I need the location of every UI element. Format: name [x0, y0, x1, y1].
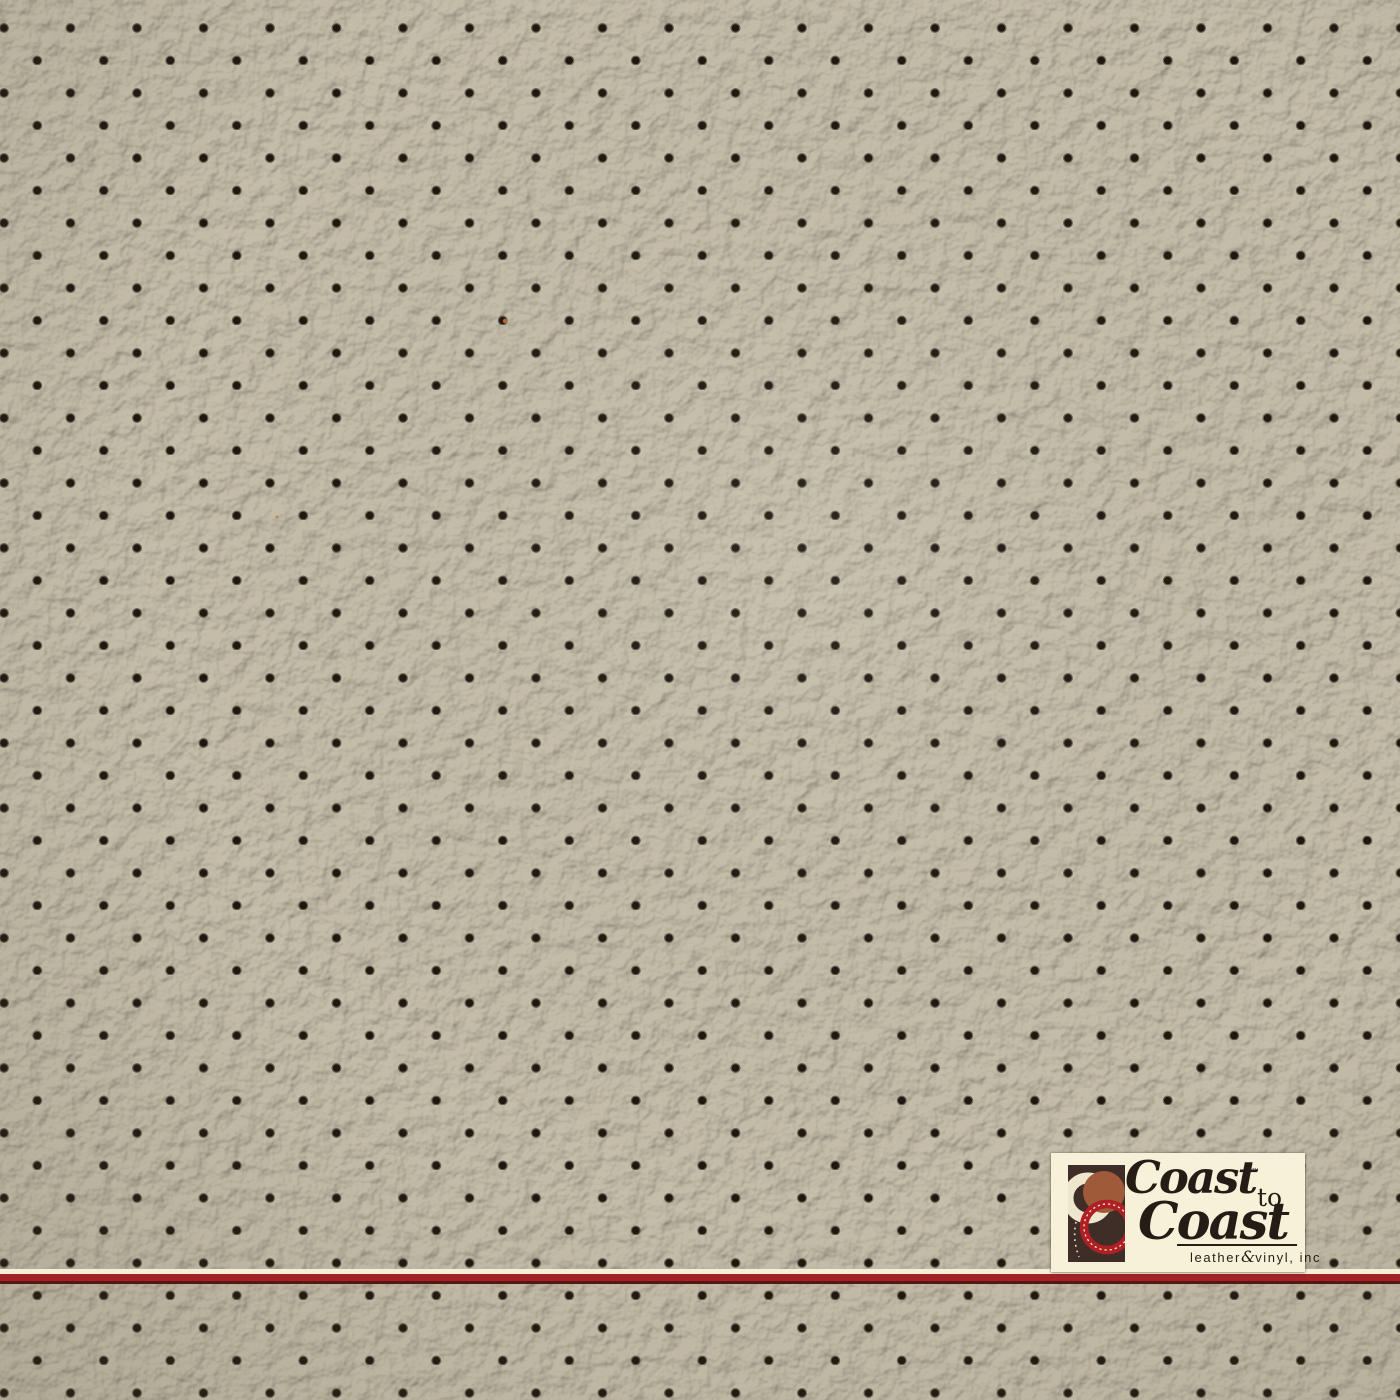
tagline-leather: leather [1190, 1250, 1241, 1265]
tagline-ampersand: & [1241, 1247, 1255, 1266]
tagline-vinyl-inc: vinyl, inc [1255, 1250, 1321, 1265]
brand-tagline: leather&vinyl, inc [1190, 1247, 1321, 1266]
leather-swatch-photo: Coast ™ to Coast leather&vinyl, inc [0, 0, 1400, 1400]
brand-watermark: Coast ™ to Coast leather&vinyl, inc [1051, 1153, 1305, 1272]
trademark-symbol: ™ [1251, 1168, 1260, 1178]
divider-line-darkred [0, 1281, 1400, 1284]
divider-line-red [0, 1274, 1400, 1281]
coast-logo-mark-icon [1068, 1165, 1125, 1262]
logo-underline-rule [1177, 1244, 1297, 1246]
brand-word-coast-bottom: Coast [1138, 1197, 1288, 1248]
